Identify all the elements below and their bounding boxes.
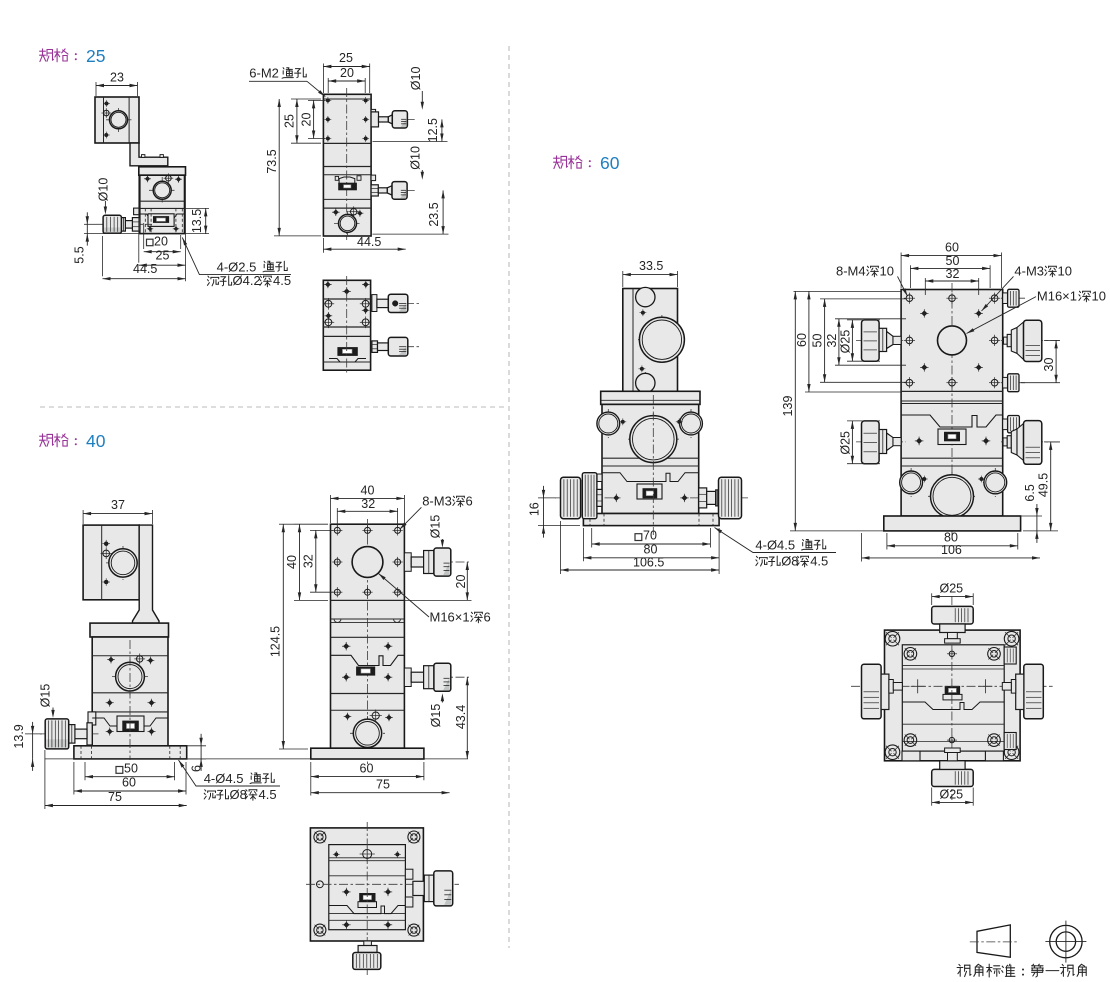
svg-text:20: 20 [154, 235, 168, 249]
svg-text:139: 139 [781, 396, 795, 417]
svg-text:43.4: 43.4 [454, 705, 468, 729]
svg-text:10: 10 [1058, 264, 1072, 279]
svg-text:6: 6 [189, 765, 203, 772]
svg-text:75: 75 [376, 778, 390, 792]
svg-text:6: 6 [466, 494, 473, 509]
svg-text:60: 60 [600, 153, 620, 173]
svg-text:20: 20 [340, 66, 354, 80]
svg-text:5.5: 5.5 [72, 246, 86, 263]
svg-text:30: 30 [1042, 358, 1056, 372]
svg-text:32: 32 [361, 497, 375, 511]
svg-text:25: 25 [86, 46, 105, 66]
svg-text:6: 6 [484, 610, 491, 625]
svg-text:4.5: 4.5 [810, 553, 828, 568]
svg-text:20: 20 [454, 575, 468, 589]
svg-text:23: 23 [110, 71, 124, 85]
svg-text:70: 70 [643, 529, 657, 543]
svg-text:Ø25: Ø25 [940, 787, 964, 801]
svg-text:60: 60 [945, 240, 959, 254]
svg-text:Ø8: Ø8 [781, 553, 798, 568]
svg-text:40: 40 [285, 555, 299, 569]
svg-text:40: 40 [361, 483, 375, 497]
svg-text:40: 40 [86, 431, 106, 451]
svg-text:60: 60 [122, 776, 136, 790]
svg-text:4-Ø2.5: 4-Ø2.5 [217, 259, 257, 274]
svg-text:Ø8: Ø8 [230, 787, 247, 802]
svg-text:44.5: 44.5 [357, 235, 381, 249]
svg-text:13.5: 13.5 [190, 209, 204, 233]
svg-text:13.9: 13.9 [12, 724, 26, 748]
svg-text:8-M4: 8-M4 [836, 264, 866, 279]
svg-text:Ø15: Ø15 [429, 515, 443, 539]
svg-text:Ø15: Ø15 [429, 704, 443, 728]
svg-text:Ø4.2: Ø4.2 [233, 273, 261, 288]
svg-text:4-Ø4.5: 4-Ø4.5 [204, 771, 244, 786]
svg-text:Ø15: Ø15 [39, 684, 53, 708]
svg-text:4.5: 4.5 [273, 273, 291, 288]
svg-text:4-M3: 4-M3 [1014, 264, 1044, 279]
svg-text:60: 60 [360, 762, 374, 776]
svg-text:12.5: 12.5 [426, 118, 440, 142]
svg-text:20: 20 [300, 113, 314, 127]
svg-text:25: 25 [282, 114, 296, 128]
svg-text:Ø25: Ø25 [940, 581, 964, 595]
svg-text:106: 106 [941, 543, 962, 557]
svg-text:Ø10: Ø10 [409, 67, 423, 91]
svg-text:32: 32 [825, 334, 839, 348]
svg-text:50: 50 [124, 761, 138, 775]
svg-text:33.5: 33.5 [639, 259, 663, 273]
svg-text:Ø10: Ø10 [408, 146, 422, 170]
svg-text:44.5: 44.5 [133, 262, 157, 276]
svg-text:25: 25 [339, 51, 353, 65]
svg-text:10: 10 [1092, 289, 1106, 304]
svg-text:25: 25 [156, 249, 170, 263]
svg-text:124.5: 124.5 [269, 626, 283, 657]
svg-text:Ø25: Ø25 [838, 330, 852, 354]
svg-text:73.5: 73.5 [265, 149, 279, 173]
svg-text:16: 16 [528, 502, 542, 516]
svg-text:10: 10 [880, 264, 894, 279]
svg-text:M16×1: M16×1 [1037, 289, 1077, 304]
svg-text:37: 37 [111, 498, 125, 512]
svg-text:75: 75 [108, 790, 122, 804]
svg-text:6-M2: 6-M2 [249, 66, 279, 81]
svg-text:6.5: 6.5 [1023, 484, 1037, 501]
svg-text:32: 32 [946, 267, 960, 281]
svg-text:Ø10: Ø10 [96, 178, 110, 202]
svg-text:4.5: 4.5 [259, 787, 277, 802]
svg-text:Ø25: Ø25 [838, 431, 852, 455]
svg-text:50: 50 [810, 334, 824, 348]
svg-text:80: 80 [644, 542, 658, 556]
svg-text:60: 60 [795, 333, 809, 347]
svg-text:49.5: 49.5 [1037, 473, 1051, 497]
svg-text:8-M3: 8-M3 [422, 494, 452, 509]
svg-text:23.5: 23.5 [427, 202, 441, 226]
svg-text:106.5: 106.5 [633, 556, 664, 570]
svg-text:50: 50 [946, 254, 960, 268]
svg-text:M16×1: M16×1 [430, 610, 470, 625]
svg-text:32: 32 [301, 554, 315, 568]
svg-text:4-Ø4.5: 4-Ø4.5 [755, 538, 795, 553]
